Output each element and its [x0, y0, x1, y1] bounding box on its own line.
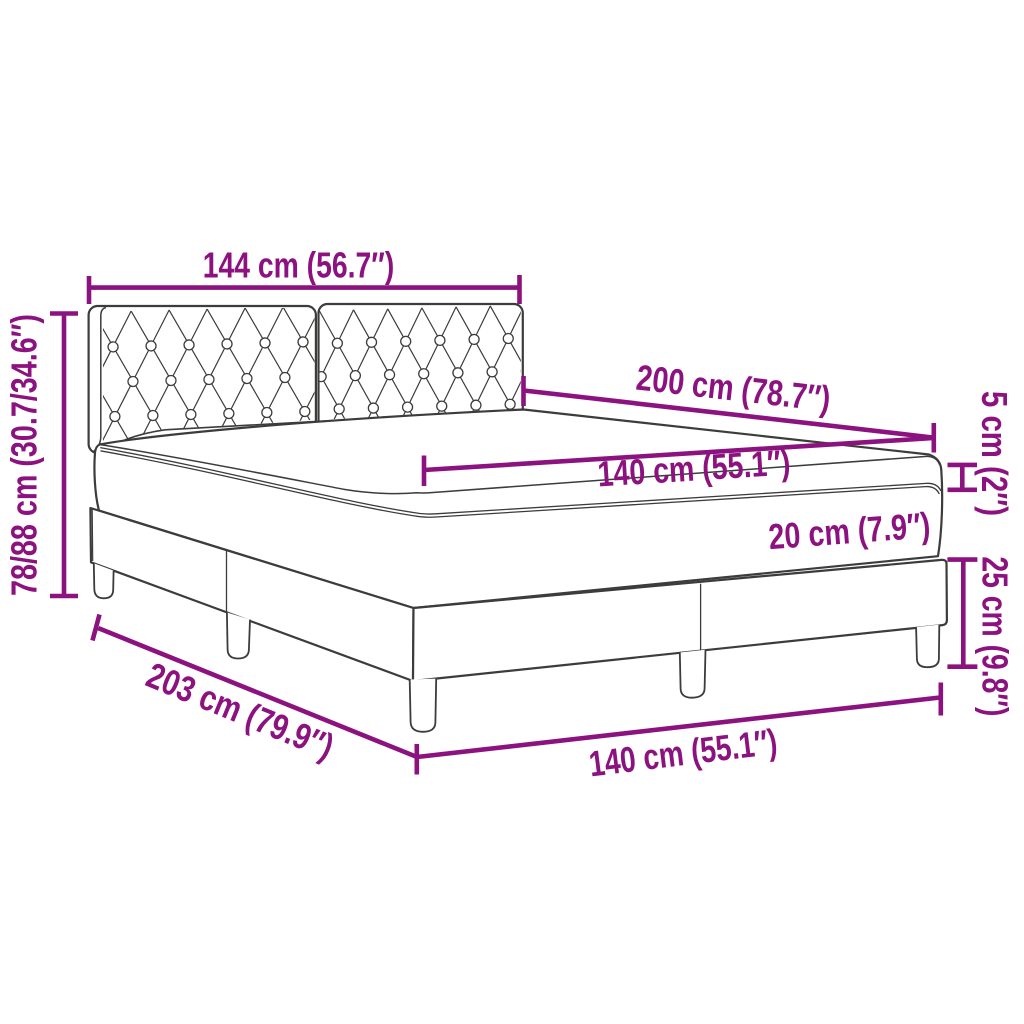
- svg-text:78/88 cm (30.7/34.6″): 78/88 cm (30.7/34.6″): [4, 314, 45, 596]
- svg-text:144 cm (56.7″): 144 cm (56.7″): [203, 245, 395, 286]
- svg-text:25 cm (9.8″): 25 cm (9.8″): [975, 556, 1016, 716]
- svg-text:5 cm (2″): 5 cm (2″): [974, 391, 1015, 516]
